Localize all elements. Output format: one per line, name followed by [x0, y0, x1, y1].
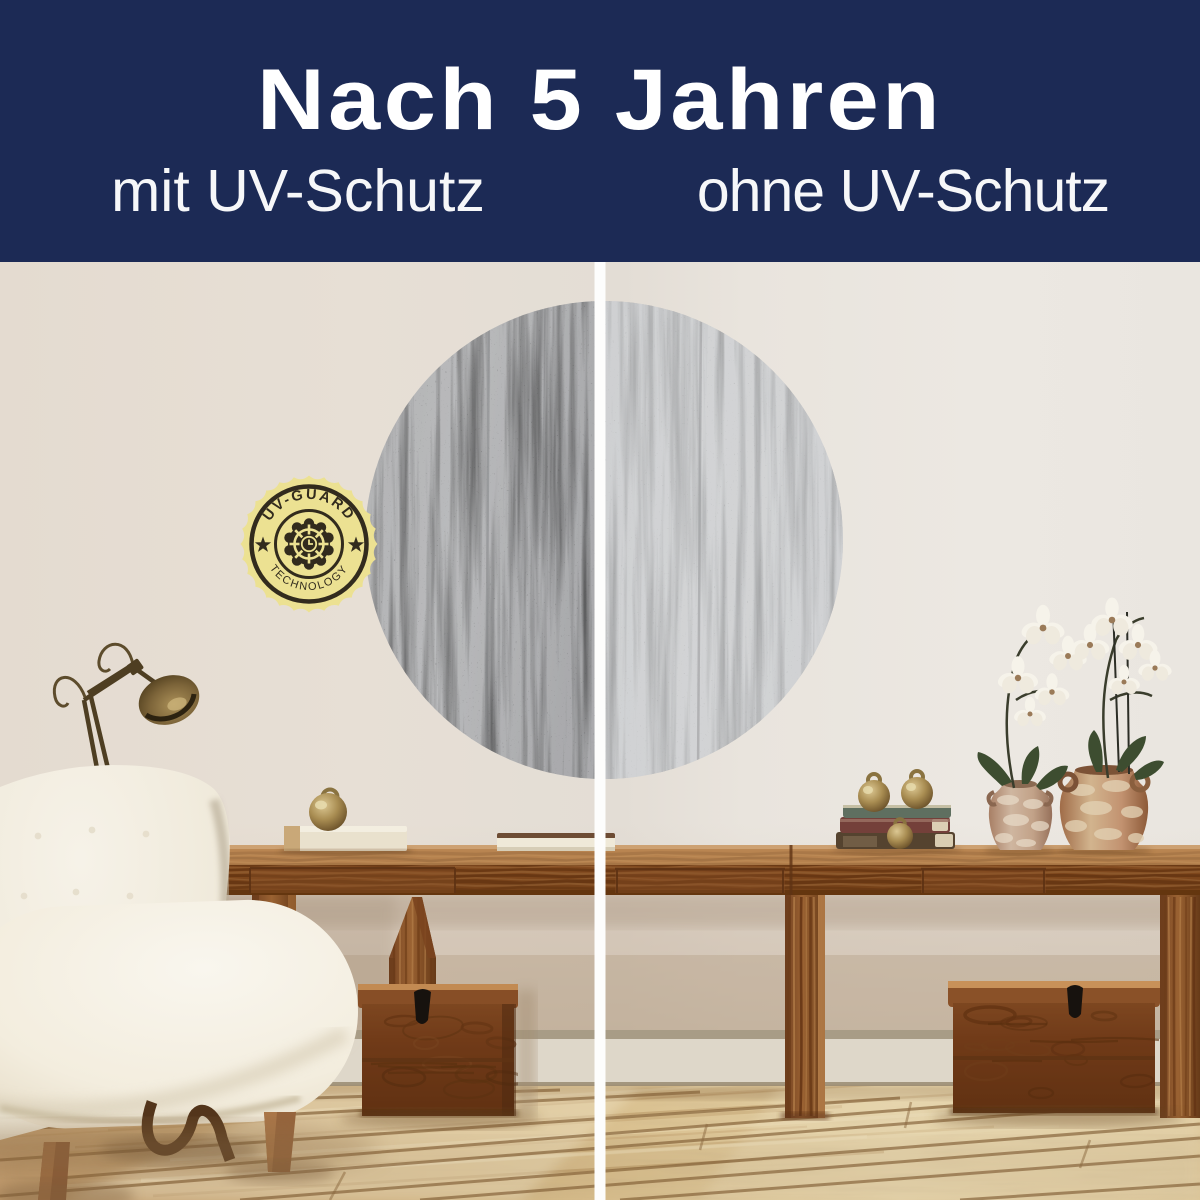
svg-text:Nach 5 Jahren: Nach 5 Jahren [257, 53, 943, 149]
svg-text:mit UV-Schutz: mit UV-Schutz [111, 158, 485, 224]
svg-text:ohne UV-Schutz: ohne UV-Schutz [697, 158, 1109, 224]
